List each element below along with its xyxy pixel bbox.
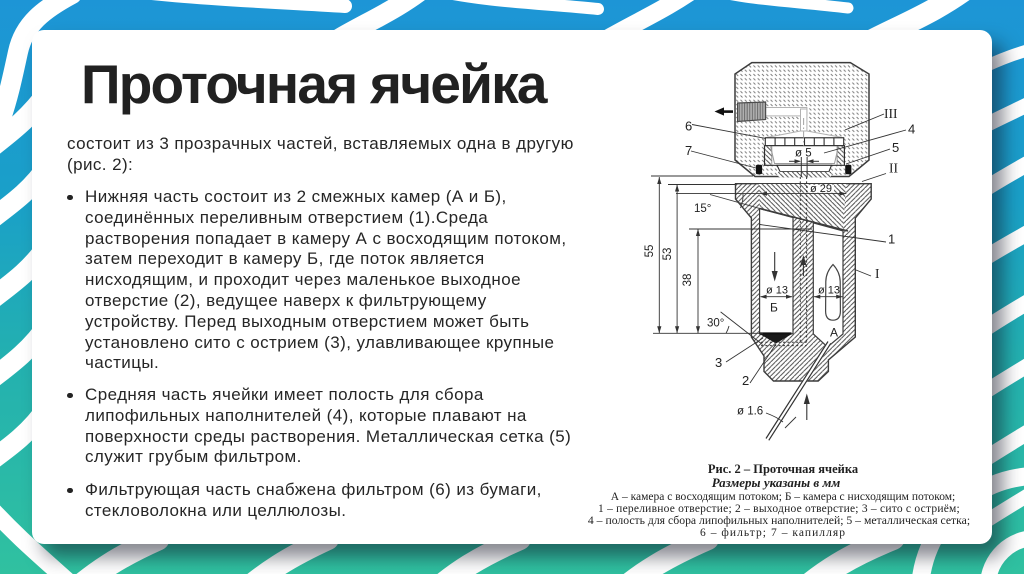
svg-text:3: 3 (715, 355, 722, 370)
svg-text:III: III (884, 106, 898, 121)
svg-text:7: 7 (685, 143, 692, 158)
svg-text:ø 29: ø 29 (810, 183, 832, 195)
svg-text:А: А (830, 326, 838, 340)
svg-text:15°: 15° (694, 203, 711, 215)
svg-text:2: 2 (742, 373, 749, 388)
svg-text:5: 5 (892, 140, 899, 155)
svg-text:ø 1.6: ø 1.6 (737, 406, 763, 418)
svg-text:1: 1 (888, 232, 895, 247)
svg-text:55: 55 (644, 245, 656, 258)
svg-text:I: I (875, 266, 880, 281)
svg-text:ø 13: ø 13 (766, 285, 788, 297)
svg-text:38: 38 (682, 274, 694, 287)
svg-text:II: II (889, 161, 898, 176)
svg-text:6: 6 (685, 119, 692, 134)
svg-text:30°: 30° (707, 318, 724, 330)
svg-text:Б: Б (770, 300, 778, 314)
svg-text:4: 4 (908, 122, 915, 137)
svg-text:53: 53 (662, 248, 674, 261)
svg-text:ø 5: ø 5 (795, 147, 812, 159)
